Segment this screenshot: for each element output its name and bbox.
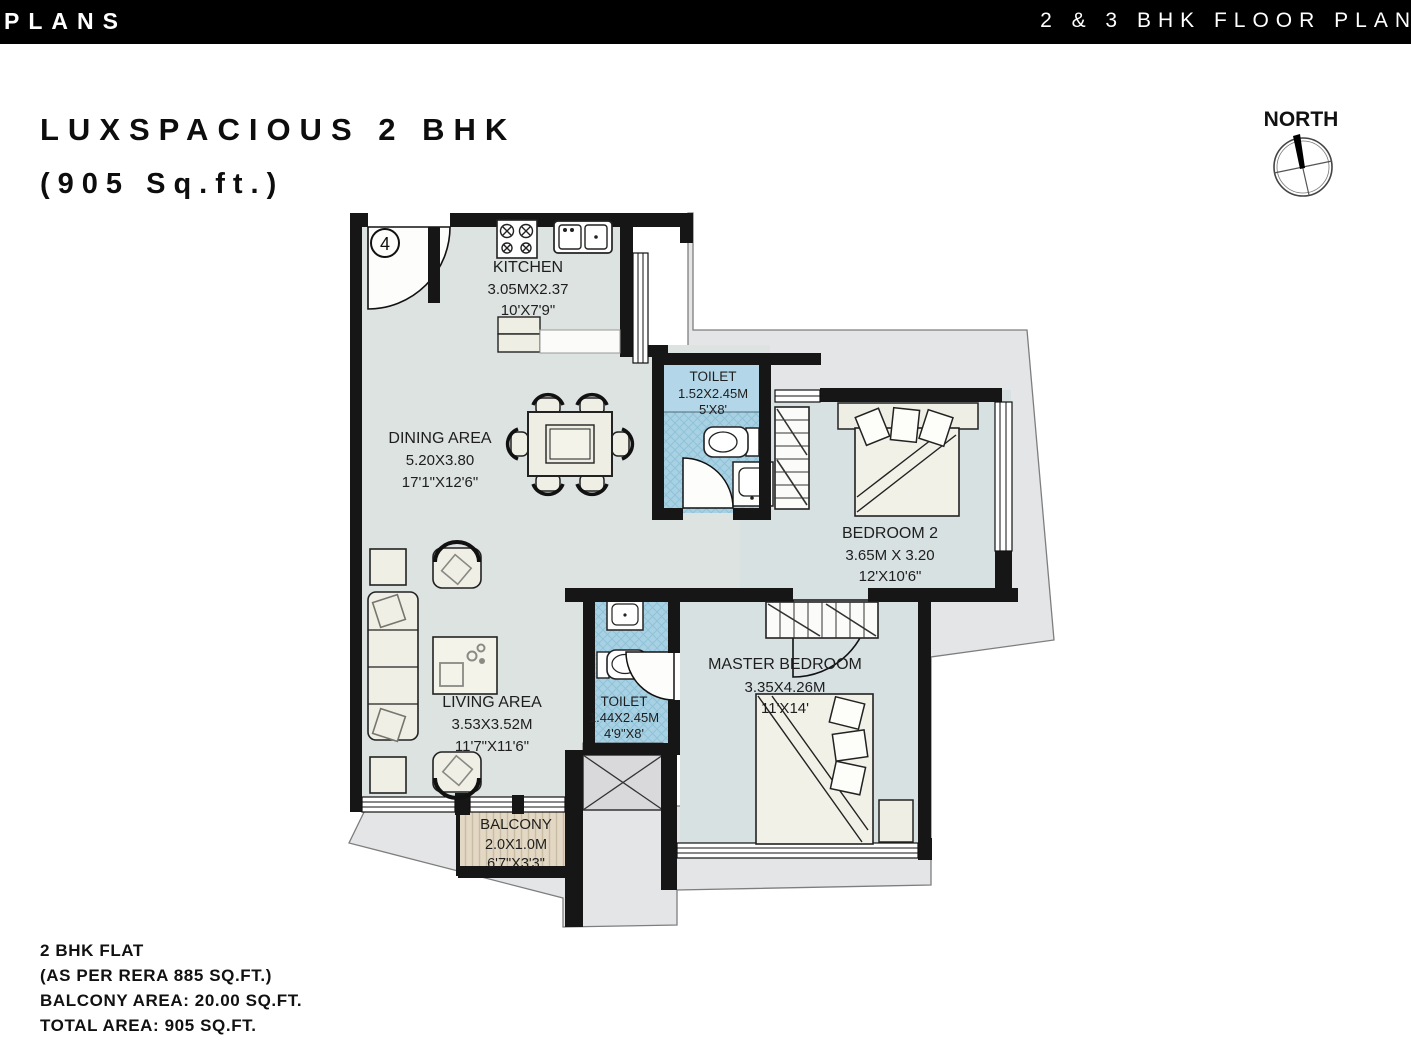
balcony-imperial: 6'7"X3'3" <box>487 856 545 872</box>
toilet2-imperial: 4'9"X8' <box>604 726 644 741</box>
kitchen-window <box>633 253 648 363</box>
master-window <box>677 843 918 858</box>
kitchen-imperial: 10'X7'9" <box>501 302 555 319</box>
master-imperial: 11'X14' <box>761 700 809 717</box>
balcony-metric: 2.0X1.0M <box>485 837 547 853</box>
bedroom2-wardrobe <box>775 407 809 509</box>
bedroom2-imperial: 12'X10'6" <box>859 568 922 585</box>
compass-needle <box>1293 134 1305 169</box>
toilet2-metric: 1.44X2.45M <box>589 710 659 725</box>
balcony-label: BALCONY <box>480 816 552 833</box>
floor-plan-svg: KITCHEN 3.05MX2.37 10'X7'9" DINING AREA … <box>0 0 1411 1055</box>
bedroom2-furniture <box>775 403 978 516</box>
bedroom2-label: BEDROOM 2 <box>842 525 938 542</box>
living-metric: 3.53X3.52M <box>452 716 533 733</box>
floor-plan-page: PLANS 2 & 3 BHK FLOOR PLAN LUXSPACIOUS 2… <box>0 0 1411 1055</box>
dining-metric: 5.20X3.80 <box>406 452 474 469</box>
north-label: NORTH <box>1264 108 1339 131</box>
unit-number: 4 <box>380 234 390 254</box>
bedroom2-side-window <box>995 402 1012 551</box>
master-wardrobe <box>766 602 878 638</box>
living-label: LIVING AREA <box>442 694 542 711</box>
dining-label: DINING AREA <box>388 430 491 447</box>
master-metric: 3.35X4.26M <box>745 679 826 696</box>
toilet1-label: TOILET <box>689 369 736 384</box>
dining-imperial: 17'1"X12'6" <box>402 474 478 491</box>
living-furniture <box>368 542 497 798</box>
kitchen-label: KITCHEN <box>493 259 563 276</box>
bedroom2-metric: 3.65M X 3.20 <box>845 547 934 564</box>
toilet1-metric: 1.52X2.45M <box>678 386 748 401</box>
living-imperial: 11'7"X11'6" <box>455 738 529 755</box>
kitchen-metric: 3.05MX2.37 <box>488 281 569 298</box>
balcony-slider <box>470 795 565 814</box>
toilet1-imperial: 5'X8' <box>699 402 727 417</box>
bedroom2-top-window <box>775 390 820 402</box>
north-compass: NORTH <box>1264 108 1339 196</box>
toilet2-label: TOILET <box>600 694 647 709</box>
living-window <box>362 797 455 812</box>
master-label: MASTER BEDROOM <box>708 656 862 673</box>
